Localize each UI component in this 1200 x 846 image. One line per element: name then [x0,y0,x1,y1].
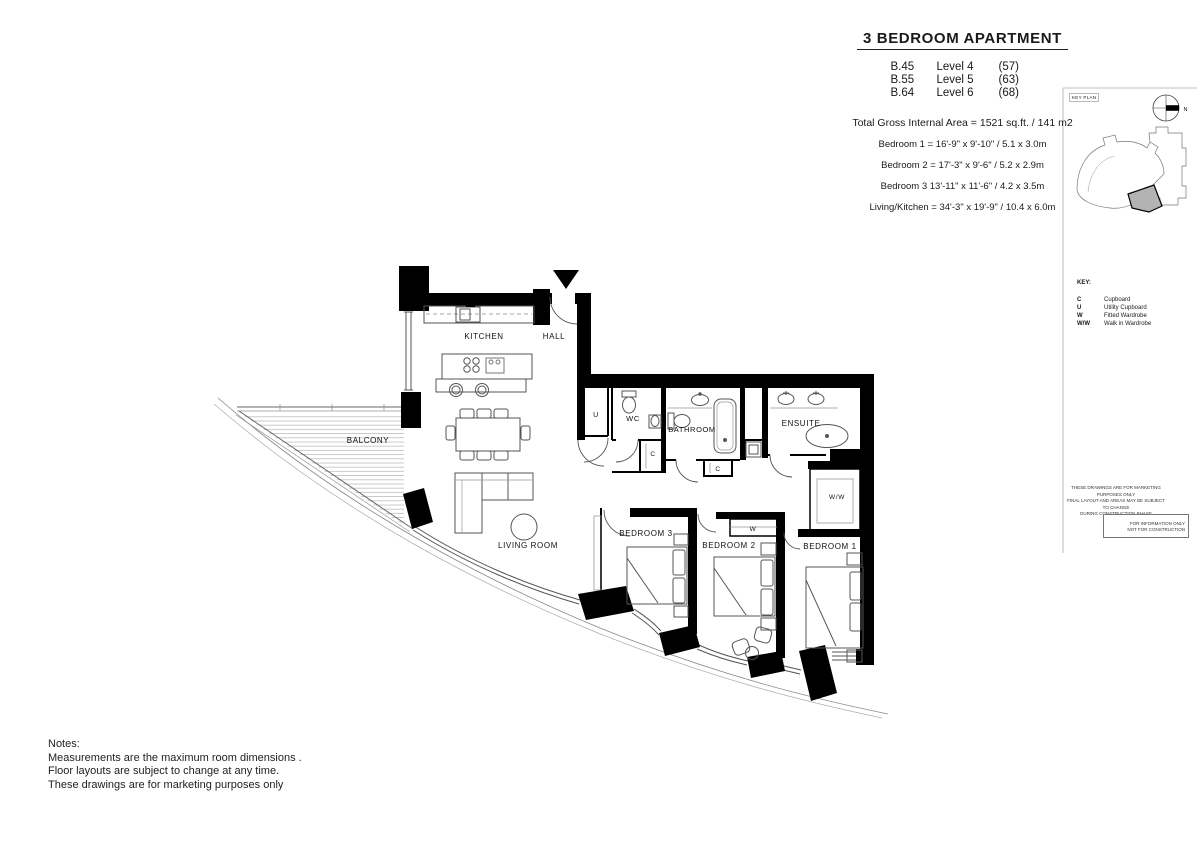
label-cupboard-2: C [715,466,720,473]
dimension-bedroom1: Bedroom 1 = 16'-9" x 9'-10" / 5.1 x 3.0m [845,139,1080,150]
notes-heading: Notes: [48,738,302,752]
keyplan-label: KEY PLAN [1069,93,1099,102]
key-abbr: W/W [1077,320,1104,328]
label-bedroom3: BEDROOM 3 [619,529,672,538]
disclaimer-line: THESE DRAWINGS ARE FOR MARKETING PURPOSE… [1066,485,1166,498]
glazed-wall [413,526,858,674]
kitchen-furniture [424,302,534,397]
sofa [455,473,537,540]
entrance-arrow-icon [553,270,579,289]
bed-bedroom1 [806,553,863,662]
label-bedroom1: BEDROOM 1 [803,542,856,551]
key-label: Utility Cupboard [1104,304,1147,312]
unit-count: (57) [999,61,1035,74]
key-abbr: W [1077,312,1104,320]
label-hall: HALL [543,332,565,341]
compass: N [1153,95,1188,121]
label-fitted-wardrobe: W [750,526,757,533]
unit-level: Level 4 [937,61,999,74]
title-block: 3 BEDROOM APARTMENT B.45 Level 4 (57) B.… [845,30,1080,213]
key-label: Fitted Wardrobe [1104,312,1147,320]
unit-row: B.45 Level 4 (57) [845,61,1080,74]
dimension-bedroom2: Bedroom 2 = 17'-3" x 9'-6" / 5.2 x 2.9m [845,160,1080,171]
utility-washer [746,442,761,457]
information-stamp: FOR INFORMATION ONLY NOT FOR CONSTRUCTIO… [1103,514,1189,538]
label-balcony: BALCONY [347,436,389,445]
dimension-bedroom3: Bedroom 3 13'-11" x 11'-6" / 4.2 x 3.5m [845,181,1080,192]
bed-bedroom3 [627,534,688,617]
key-abbr: U [1077,304,1104,312]
key-legend-row: C Cupboard [1077,296,1151,304]
dining-set [446,409,530,460]
unit-row: B.64 Level 6 (68) [845,87,1080,100]
bed-bedroom2 [714,543,776,660]
unit-code: B.45 [891,61,937,74]
page-title: 3 BEDROOM APARTMENT [857,30,1068,50]
unit-level: Level 6 [937,87,999,100]
unit-count: (68) [999,87,1035,100]
notes-line: These drawings are for marketing purpose… [48,779,302,793]
label-wc: WC [626,414,640,423]
label-kitchen: KITCHEN [464,332,503,341]
unit-list: B.45 Level 4 (57) B.55 Level 5 (63) B.64… [845,61,1080,100]
compass-needle-icon [1166,105,1179,111]
label-bathroom: BATHROOM [668,425,716,434]
key-label: Walk in Wardrobe [1104,320,1151,328]
key-legend-heading: KEY: [1077,279,1151,287]
total-area: Total Gross Internal Area = 1521 sq.ft. … [845,117,1080,129]
disclaimer-text: THESE DRAWINGS ARE FOR MARKETING PURPOSE… [1066,485,1166,518]
unit-code: B.55 [891,74,937,87]
key-abbr: C [1077,296,1104,304]
label-ensuite: ENSUITE [782,419,821,428]
notes-line: Measurements are the maximum room dimens… [48,752,302,766]
dimension-living-kitchen: Living/Kitchen = 34'-3" x 19'-9" / 10.4 … [845,202,1080,213]
label-utility-cupboard: U [593,412,599,419]
notes-line: Floor layouts are subject to change at a… [48,765,302,779]
bathroom-fixtures [668,393,736,453]
key-legend-row: W Fitted Wardrobe [1077,312,1151,320]
unit-level: Level 5 [937,74,999,87]
unit-code: B.64 [891,87,937,100]
label-walkin-wardrobe: W/W [829,494,845,501]
balcony-deck [236,404,413,532]
label-bedroom2: BEDROOM 2 [702,541,755,550]
key-legend-row: W/W Walk in Wardrobe [1077,320,1151,328]
key-legend-row: U Utility Cupboard [1077,304,1151,312]
key-label: Cupboard [1104,296,1130,304]
kitchen-window [404,312,413,390]
floorplan-sheet: KITCHEN HALL BALCONY LIVING ROOM BEDROOM… [0,0,1200,846]
unit-count: (63) [999,74,1035,87]
label-cupboard-1: C [650,451,655,458]
key-legend: KEY: C Cupboard U Utility Cupboard W Fit… [1077,279,1151,328]
label-living-room: LIVING ROOM [498,541,558,550]
stamp-line: NOT FOR CONSTRUCTION [1104,527,1185,533]
unit-row: B.55 Level 5 (63) [845,74,1080,87]
notes-block: Notes: Measurements are the maximum room… [48,738,302,792]
keyplan-building [1077,127,1186,212]
disclaimer-line: FINAL LAYOUT AND AREAS MAY BE SUBJECT TO… [1066,498,1166,511]
compass-north-label: N [1184,107,1188,113]
